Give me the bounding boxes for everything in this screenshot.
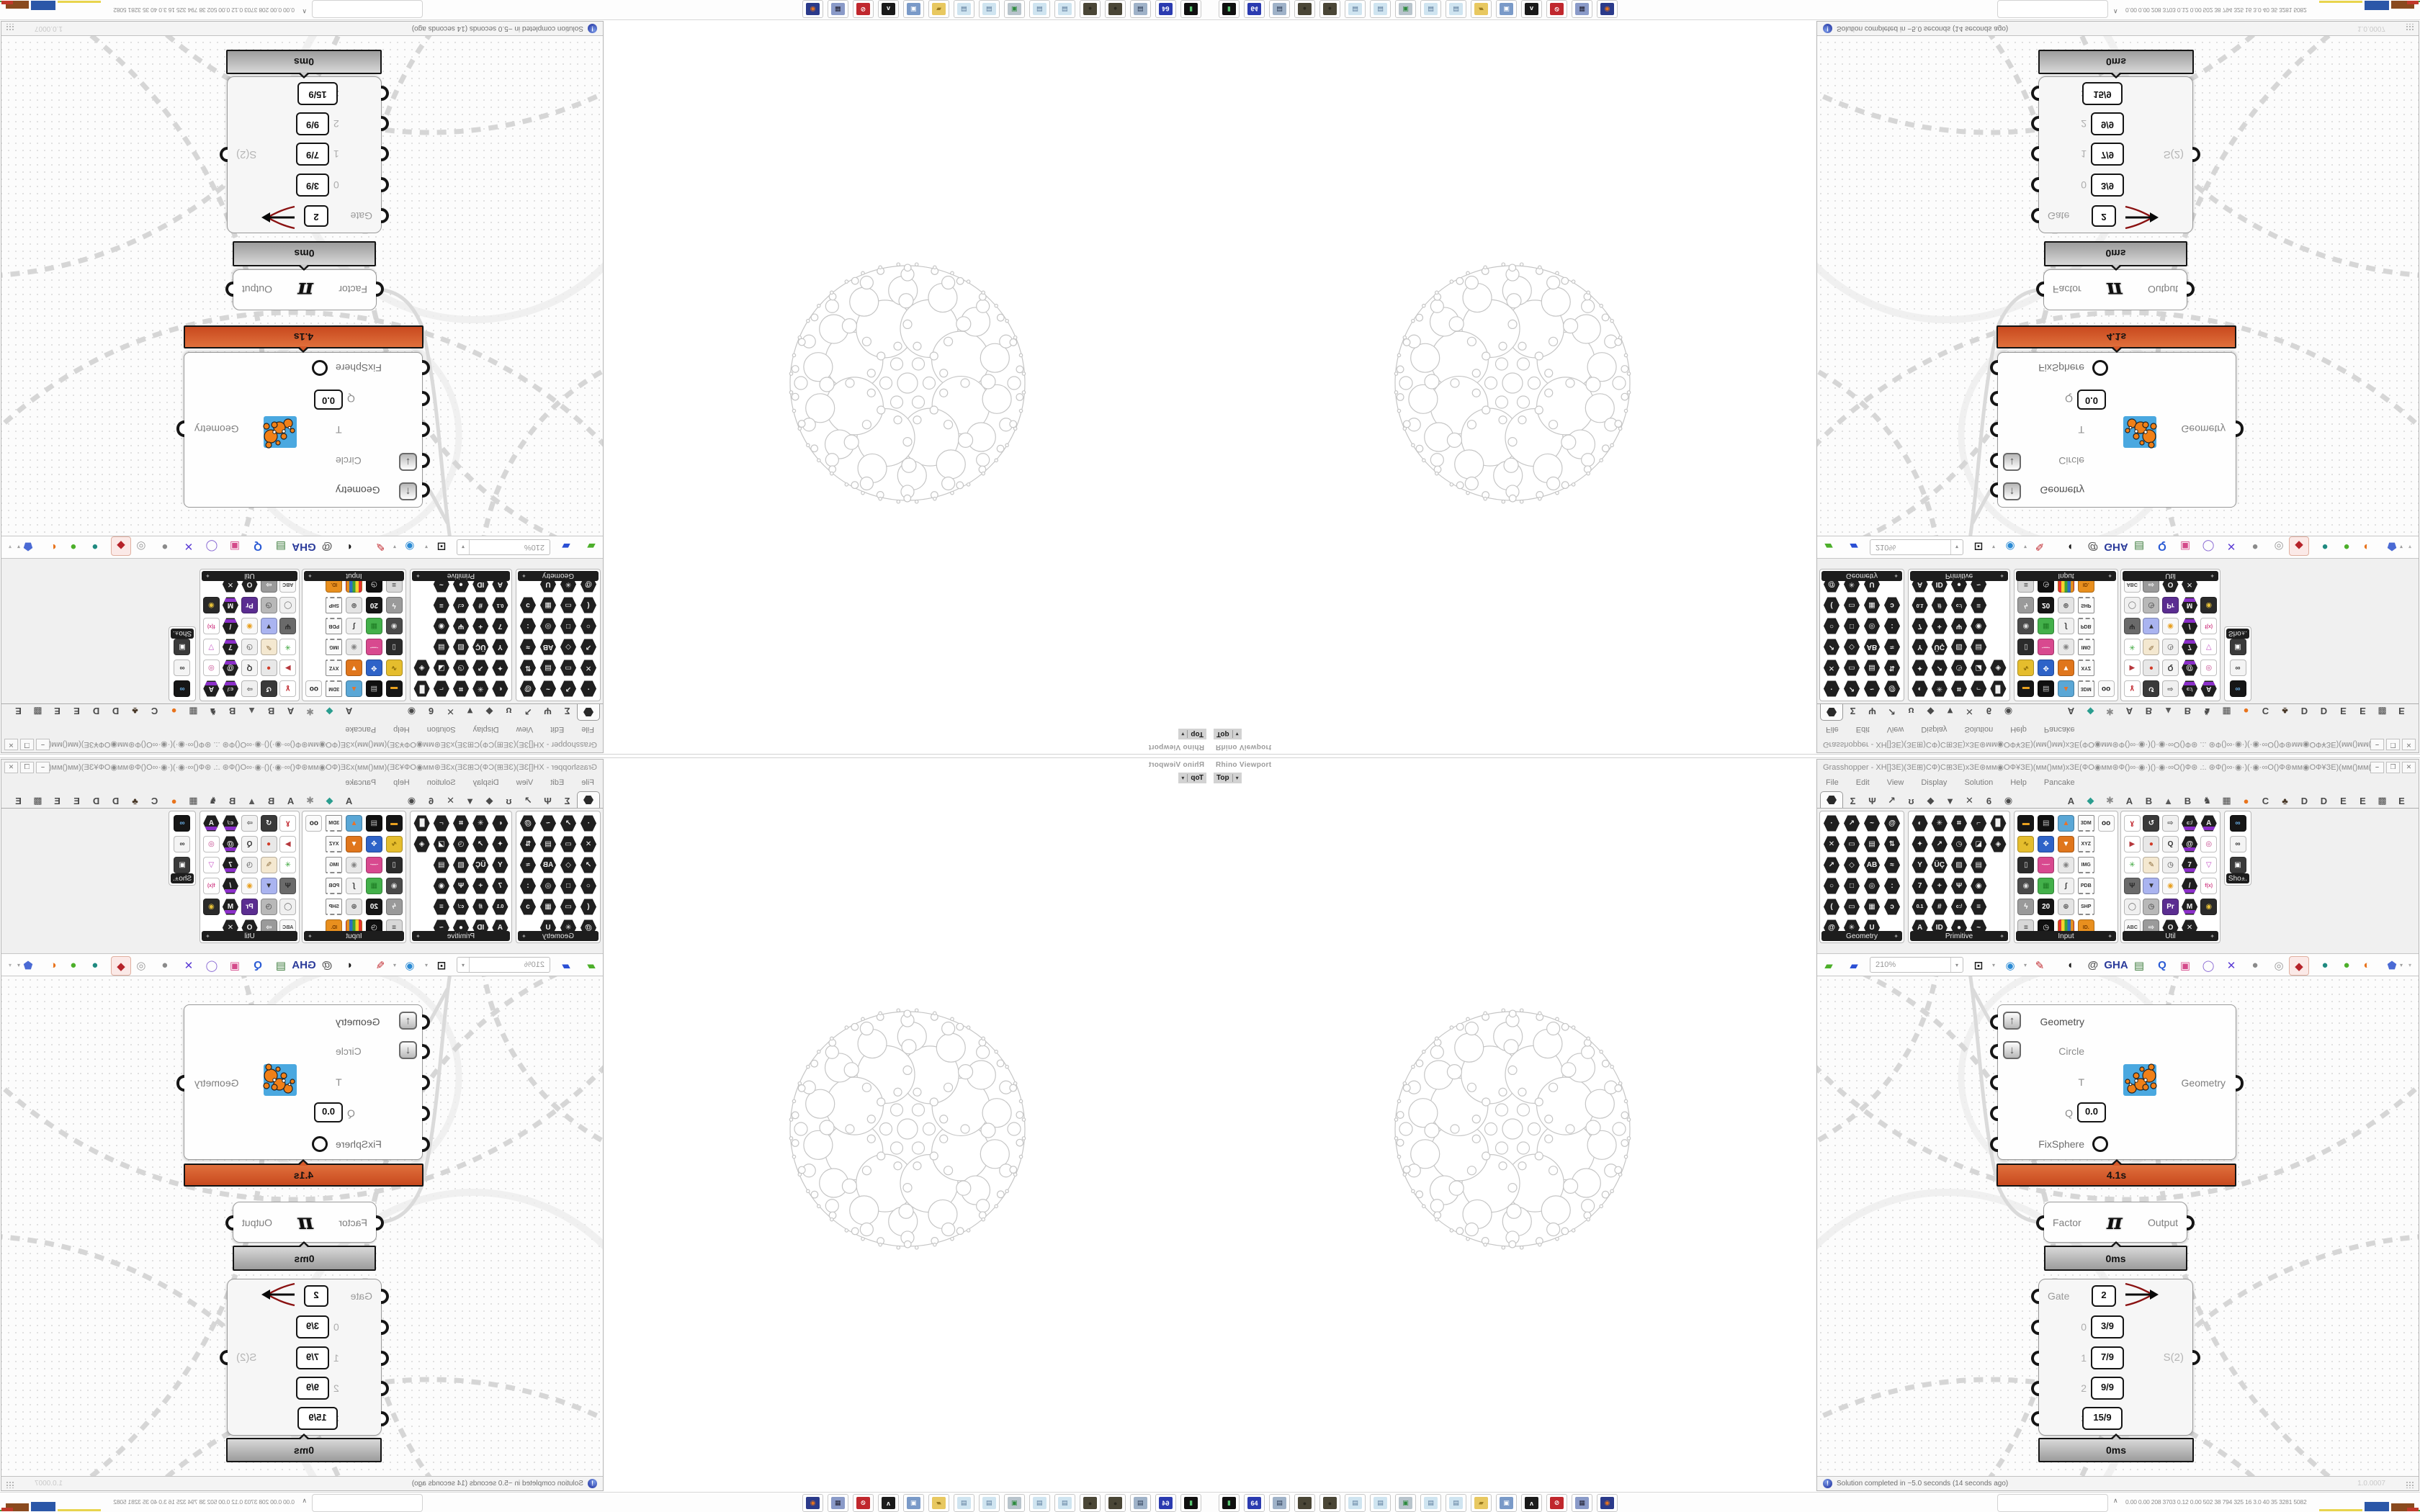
- spiral-purple-icon[interactable]: @: [2182, 836, 2198, 852]
- internalise-button[interactable]: @: [2084, 538, 2102, 556]
- monitor-icon[interactable]: ▣: [1395, 1494, 1416, 1512]
- tab-plugin-grid[interactable]: ▦: [184, 704, 203, 719]
- resize-grip[interactable]: [6, 24, 14, 31]
- palette-group-label[interactable]: Primitive✦: [412, 931, 510, 941]
- donut-icon[interactable]: ◎: [2200, 660, 2217, 676]
- array-icon[interactable]: ⌗: [453, 680, 470, 697]
- doc-icon[interactable]: ≡: [1971, 597, 1987, 613]
- palette-group-label[interactable]: Sho...✦: [2226, 629, 2249, 639]
- paint-icon[interactable]: ▼: [2058, 836, 2074, 852]
- seven-icon[interactable]: 7: [1912, 618, 1928, 634]
- ray-icon[interactable]: ↗: [1931, 660, 1948, 676]
- file-3dm-icon[interactable]: 3DM: [2078, 680, 2094, 697]
- goggles-info-icon[interactable]: ∞: [2230, 680, 2246, 697]
- cpath-icon[interactable]: c:/: [2182, 815, 2198, 832]
- balloon-button[interactable]: ◯: [202, 538, 221, 556]
- tab-plugin-a2[interactable]: A: [2120, 704, 2139, 719]
- c64-icon[interactable]: 64: [1244, 0, 1265, 18]
- caret-icon[interactable]: ▾: [15, 538, 22, 556]
- a-purple-icon[interactable]: A: [203, 680, 220, 697]
- flask-icon[interactable]: ▽: [203, 857, 220, 873]
- param-icon[interactable]: ◐: [1912, 815, 1928, 832]
- paint-icon[interactable]: ▼: [2058, 660, 2074, 676]
- array-icon[interactable]: ⌗: [453, 815, 470, 832]
- goggles-info-icon[interactable]: ∞: [2230, 815, 2246, 832]
- arc-icon[interactable]: (: [1824, 899, 1840, 915]
- circle-icon[interactable]: ○: [581, 878, 597, 894]
- tab-plugin-b2[interactable]: B: [2178, 793, 2197, 808]
- paint-icon[interactable]: ▼: [346, 836, 362, 852]
- cam-icon[interactable]: ◈: [1990, 660, 2007, 676]
- tab-plugin-flower[interactable]: ✱: [2100, 704, 2120, 719]
- scroll-icon[interactable]: ▾: [2406, 538, 2414, 556]
- ball2-icon[interactable]: ●: [1319, 1494, 1340, 1512]
- wire-display-button[interactable]: ◖: [341, 538, 359, 556]
- input-nub-0[interactable]: [2031, 1320, 2039, 1335]
- boolean-circle-icon[interactable]: [312, 360, 328, 376]
- tab-plugin-b1[interactable]: B: [261, 793, 281, 808]
- tab-display[interactable]: ◉: [402, 793, 421, 808]
- wave-icon[interactable]: ≈: [1884, 857, 1901, 873]
- arc-icon[interactable]: (: [581, 899, 597, 915]
- tab-plugin-flower[interactable]: ✱: [300, 704, 320, 719]
- tab-plugin-c[interactable]: C: [145, 793, 164, 808]
- tray-chevron-icon[interactable]: ∧: [302, 1497, 307, 1505]
- maximize-button[interactable]: ❒: [20, 762, 34, 773]
- fixsphere-component[interactable]: ↑ Geometry ↓ Circle T: [1997, 1004, 2236, 1160]
- tab-plugin-e2[interactable]: E: [2353, 704, 2372, 719]
- printer-icon[interactable]: ▤: [1130, 1494, 1151, 1512]
- tree-icon[interactable]: Ψ: [453, 618, 470, 634]
- viewport-tab-top[interactable]: Top ▾: [1214, 729, 1242, 739]
- cluster-button[interactable]: ▣: [225, 538, 244, 556]
- tab-intersect[interactable]: ✕: [1960, 793, 1979, 808]
- wrench-purple-icon[interactable]: /: [2182, 618, 2198, 634]
- knob-icon[interactable]: ◉: [386, 878, 403, 894]
- zigzag-icon[interactable]: ϟ: [2017, 899, 2034, 915]
- ray-icon[interactable]: ↗: [472, 660, 489, 676]
- wrench-purple-icon[interactable]: /: [222, 878, 238, 894]
- title-bar[interactable]: Grasshopper - XH[]ЗЕ)(ЗЕ⊞)СФ)С⊞ЗЕ)хЗЕ⊛мм…: [1, 760, 603, 774]
- vector-icon[interactable]: ↗: [1844, 815, 1860, 832]
- gauge-icon[interactable]: ◷: [261, 597, 277, 613]
- tab-plugin-e1[interactable]: E: [2334, 704, 2353, 719]
- tab-surface[interactable]: ◆: [1921, 793, 1940, 808]
- pipe-icon[interactable]: ◎: [1864, 618, 1881, 634]
- monitor-icon[interactable]: ▣: [1004, 1494, 1025, 1512]
- tab-plugin-d1[interactable]: D: [106, 704, 125, 719]
- fx-icon[interactable]: f(x): [2200, 878, 2217, 894]
- circle-icon[interactable]: ○: [581, 618, 597, 634]
- tab-intersect[interactable]: ✕: [1960, 704, 1979, 719]
- surface-icon[interactable]: ▤: [540, 660, 557, 676]
- file-shp-icon[interactable]: SHP: [326, 899, 342, 915]
- loop-icon[interactable]: ↺: [261, 815, 277, 832]
- tree-icon[interactable]: Ψ: [1950, 618, 1967, 634]
- donut-icon[interactable]: ◎: [2200, 836, 2217, 852]
- tab-plugin-d2[interactable]: D: [2314, 793, 2334, 808]
- notepad2-icon[interactable]: ▤: [1370, 1494, 1391, 1512]
- point-icon[interactable]: ·: [1824, 680, 1840, 697]
- rec-icon[interactable]: ●: [261, 660, 277, 676]
- tab-surface[interactable]: ◆: [480, 704, 499, 719]
- box-icon[interactable]: □: [1844, 878, 1860, 894]
- q-value-box[interactable]: 0.0: [2077, 1102, 2106, 1122]
- circle-icon[interactable]: ○: [1824, 618, 1840, 634]
- preview-shaded-button[interactable]: ◆: [2289, 536, 2309, 556]
- doc-icon[interactable]: ≡: [433, 899, 449, 915]
- arrow-white-icon[interactable]: ⇨: [2162, 680, 2179, 697]
- display-settings-icon[interactable]: ▣: [903, 1494, 924, 1512]
- mesh-icon[interactable]: ▦: [1864, 597, 1881, 613]
- scribble-icon[interactable]: ∿: [386, 836, 403, 852]
- tab-plugin-flower[interactable]: ✱: [2100, 793, 2120, 808]
- caret-icon[interactable]: ▾: [1990, 538, 1997, 556]
- knob-icon[interactable]: ◉: [2017, 878, 2034, 894]
- tab-plugin-dot[interactable]: ●: [2236, 704, 2256, 719]
- file-shp-icon[interactable]: SHP: [2078, 899, 2094, 915]
- menu-item-solution[interactable]: Solution: [1964, 725, 1993, 734]
- printer-icon[interactable]: ▤: [1130, 0, 1151, 18]
- wave-icon[interactable]: ≈: [520, 857, 537, 873]
- gate-value-0[interactable]: 3/9: [2091, 174, 2124, 197]
- dosbox-icon[interactable]: ▮: [1219, 1494, 1240, 1512]
- menu-item-view[interactable]: View: [1887, 725, 1904, 734]
- spiral-purple-icon[interactable]: @: [2182, 660, 2198, 676]
- wire-icon[interactable]: ·—·: [366, 857, 382, 873]
- gate-value-1[interactable]: 7/9: [296, 143, 329, 166]
- gate-value-3[interactable]: 15/9: [297, 82, 338, 105]
- folder-icon[interactable]: ▰: [928, 0, 949, 18]
- tab-plugin-bird[interactable]: ♣: [125, 793, 145, 808]
- burst-icon[interactable]: ✳: [1931, 680, 1948, 697]
- input-nub-factor[interactable]: [2036, 1215, 2044, 1230]
- tab-maths[interactable]: Σ: [1843, 793, 1863, 808]
- decimal-icon[interactable]: 0.1: [1912, 899, 1928, 915]
- caret-icon[interactable]: ▾: [2022, 538, 2029, 556]
- blob-icon[interactable]: ◉: [1971, 618, 1987, 634]
- vector-icon[interactable]: ↗: [560, 815, 577, 832]
- burst-icon[interactable]: ✳: [1931, 815, 1948, 832]
- tab-plugin-e1[interactable]: E: [2334, 793, 2353, 808]
- shirt-icon[interactable]: ▼: [261, 878, 277, 894]
- minimize-button[interactable]: –: [2370, 739, 2384, 750]
- twist-icon[interactable]: ⇅: [1884, 836, 1901, 852]
- arrow-white-icon[interactable]: ⇨: [241, 680, 258, 697]
- slider-icon[interactable]: ▬: [2017, 815, 2034, 832]
- notepad2-icon[interactable]: ▤: [1029, 1494, 1050, 1512]
- tab-plugin-square[interactable]: ▩: [2372, 793, 2392, 808]
- rgb-icon[interactable]: ✳: [2124, 639, 2141, 655]
- cross-icon[interactable]: ✕: [581, 836, 597, 852]
- tab-maths[interactable]: Σ: [1843, 704, 1863, 719]
- tab-plugin-bird[interactable]: ♣: [2275, 793, 2295, 808]
- calendar-icon[interactable]: 20: [2038, 899, 2054, 915]
- mesh-icon[interactable]: ▦: [540, 597, 557, 613]
- arc-icon[interactable]: (: [581, 597, 597, 613]
- gha-loader-button[interactable]: GHA: [295, 956, 313, 974]
- tab-display[interactable]: ◉: [1999, 793, 2018, 808]
- abc-icon[interactable]: AB: [1864, 639, 1881, 655]
- tab-params[interactable]: [577, 791, 600, 808]
- pencil-icon[interactable]: ✎: [2143, 857, 2159, 873]
- tab-transform[interactable]: 6: [421, 793, 441, 808]
- hook2-icon[interactable]: ⌐: [1971, 815, 1987, 832]
- caret-icon[interactable]: ▾: [391, 538, 398, 556]
- hook2-icon[interactable]: ⌐: [433, 815, 449, 832]
- balloon-button[interactable]: ◯: [2199, 538, 2218, 556]
- tab-plugin-rabbit[interactable]: ♞: [2197, 793, 2217, 808]
- cross-icon[interactable]: ✕: [1824, 836, 1840, 852]
- tab-vector[interactable]: ↗: [1882, 704, 1901, 719]
- preview-wire-button[interactable]: ◎: [132, 956, 151, 974]
- toggle-icon[interactable]: ▯: [386, 639, 403, 655]
- firefox-icon[interactable]: ◉: [802, 1494, 823, 1512]
- seven-purple-icon[interactable]: 7: [222, 639, 238, 655]
- c64-icon[interactable]: 64: [1155, 0, 1176, 18]
- loop-icon[interactable]: ↺: [2143, 815, 2159, 832]
- canvas-zoom-dropdown[interactable]: 210%▾: [1870, 539, 1963, 555]
- caret-icon[interactable]: ▾: [2398, 538, 2405, 556]
- save-file-button[interactable]: ▰: [1845, 956, 1863, 974]
- gate-component[interactable]: Gate 2 03/917/929/9315/9S(2): [2038, 1279, 2193, 1436]
- mem-icon[interactable]: ▉: [1990, 680, 2007, 697]
- hook-icon[interactable]: ɔ: [520, 597, 537, 613]
- menu-item-file[interactable]: File: [1826, 778, 1839, 787]
- diamond-icon[interactable]: ◇: [1844, 857, 1860, 873]
- toggle-icon[interactable]: ▯: [2017, 639, 2034, 655]
- display-settings-icon[interactable]: ▣: [903, 0, 924, 18]
- cat-icon[interactable]: ʌ: [878, 0, 899, 18]
- hook2-icon[interactable]: ⌐: [1971, 680, 1987, 697]
- diamond-icon[interactable]: ◇: [560, 857, 577, 873]
- find-button[interactable]: Q: [2153, 956, 2172, 974]
- tab-plugin-d2[interactable]: D: [86, 704, 106, 719]
- notepad2-icon[interactable]: ▤: [1370, 0, 1391, 18]
- tab-plugin-bird[interactable]: ♣: [2275, 704, 2295, 719]
- clock-icon[interactable]: ◷: [1950, 836, 1967, 852]
- colorwheel-icon[interactable]: ◉: [346, 857, 362, 873]
- uc-icon[interactable]: ÜÇ: [472, 639, 489, 655]
- tray-chevron-icon[interactable]: ∧: [2113, 1497, 2118, 1505]
- jigsaw-button[interactable]: ✕: [2222, 956, 2241, 974]
- tray-chevron-icon[interactable]: ∧: [2113, 7, 2118, 15]
- cat-icon[interactable]: ʌ: [1521, 1494, 1542, 1512]
- arc-icon[interactable]: (: [1824, 597, 1840, 613]
- input-nub-1[interactable]: [2031, 1351, 2039, 1366]
- input-nub-q[interactable]: [1990, 1106, 1998, 1121]
- tab-plugin-square[interactable]: ▩: [28, 793, 48, 808]
- preview-off-button[interactable]: ●: [156, 538, 174, 556]
- tab-transform[interactable]: 6: [1979, 704, 1999, 719]
- tab-plugin-b1[interactable]: B: [2139, 793, 2159, 808]
- q-value-box[interactable]: 0.0: [2077, 390, 2106, 410]
- branch-icon[interactable]: Y: [1912, 857, 1928, 873]
- tab-plugin-square[interactable]: ▩: [28, 704, 48, 719]
- tab-display[interactable]: ◉: [402, 704, 421, 719]
- plus-icon[interactable]: +: [472, 618, 489, 634]
- boolean-circle-icon[interactable]: [312, 1136, 328, 1152]
- caret-icon[interactable]: ▾: [423, 538, 430, 556]
- find-button[interactable]: Q: [248, 538, 267, 556]
- cluster-button[interactable]: ▣: [2176, 538, 2195, 556]
- palette-group-label[interactable]: Util✦: [2123, 931, 2218, 941]
- wire-display-button[interactable]: ◖: [341, 956, 359, 974]
- blob-green-button[interactable]: ●: [2337, 538, 2356, 556]
- tab-plugin-d1[interactable]: D: [106, 793, 125, 808]
- caret-icon[interactable]: ▾: [1990, 956, 1997, 974]
- canvas-zoom-dropdown[interactable]: 210%▾: [457, 539, 550, 555]
- tab-display[interactable]: ◉: [1999, 704, 2018, 719]
- gha-loader-button[interactable]: GHA: [2107, 956, 2125, 974]
- egg-icon[interactable]: ◉: [241, 618, 258, 634]
- boolean-circle-icon[interactable]: [2092, 1136, 2108, 1152]
- uc-icon[interactable]: ÜÇ: [1931, 639, 1948, 655]
- scroll-icon[interactable]: ▾: [2406, 956, 2414, 974]
- sphere-orange-button[interactable]: ◐: [44, 956, 63, 974]
- seven-purple-icon[interactable]: 7: [2182, 639, 2198, 655]
- printer-icon[interactable]: ▤: [1269, 1494, 1290, 1512]
- calculator-icon[interactable]: ▦: [1572, 1494, 1592, 1512]
- graph-icon[interactable]: ∫: [2058, 878, 2074, 894]
- scatter-icon[interactable]: :: [1884, 618, 1901, 634]
- colorwheel-icon[interactable]: ◉: [2058, 857, 2074, 873]
- checker-green-icon[interactable]: ▦: [366, 618, 382, 634]
- arrow-white-icon[interactable]: ⇨: [2162, 815, 2179, 832]
- resize-grip[interactable]: [6, 1481, 14, 1488]
- sphere-orange-button[interactable]: ◐: [2357, 538, 2376, 556]
- folder-icon[interactable]: ▰: [1471, 0, 1492, 18]
- open-file-button[interactable]: ▰: [582, 538, 601, 556]
- tab-curve[interactable]: ʊ: [499, 793, 519, 808]
- menu-item-display[interactable]: Display: [1921, 778, 1947, 787]
- cat-icon[interactable]: ʌ: [1521, 0, 1542, 18]
- wrench-purple-icon[interactable]: /: [2182, 878, 2198, 894]
- seven-icon[interactable]: 7: [1912, 878, 1928, 894]
- tab-intersect[interactable]: ✕: [441, 704, 460, 719]
- ball2-icon[interactable]: ●: [1080, 0, 1101, 18]
- caret-icon[interactable]: ▾: [2398, 956, 2405, 974]
- maximize-button[interactable]: ❒: [20, 739, 34, 750]
- arrow-white-icon[interactable]: ⇨: [241, 815, 258, 832]
- tab-plugin-d2[interactable]: D: [86, 793, 106, 808]
- tab-params[interactable]: [1820, 704, 1843, 721]
- cross-icon[interactable]: ✕: [1824, 660, 1840, 676]
- tab-plugin-b1[interactable]: B: [2139, 704, 2159, 719]
- clock-icon[interactable]: ◷: [453, 836, 470, 852]
- tab-plugin-grid[interactable]: ▦: [184, 793, 203, 808]
- preview-wire-button[interactable]: ◎: [2269, 956, 2288, 974]
- plus-icon[interactable]: +: [1931, 618, 1948, 634]
- atom-icon[interactable]: ⊕: [346, 899, 362, 915]
- gate-component[interactable]: Gate 2 03/917/929/9315/9S(2): [2038, 76, 2193, 233]
- tab-plugin-e2[interactable]: E: [48, 704, 67, 719]
- sphere-orange-button[interactable]: ◐: [2357, 956, 2376, 974]
- minimize-button[interactable]: –: [36, 762, 50, 773]
- preview-eye-button[interactable]: ◉: [2001, 956, 2020, 974]
- blob-green-button[interactable]: ●: [2337, 956, 2356, 974]
- rec-icon[interactable]: ●: [2143, 660, 2159, 676]
- tab-plugin-rabbit[interactable]: ♞: [203, 704, 223, 719]
- palette-group-label[interactable]: Input✦: [2016, 571, 2116, 581]
- knob-icon[interactable]: ◉: [386, 618, 403, 634]
- menu-item-pancake[interactable]: Pancake: [345, 778, 376, 787]
- preview-wire-button[interactable]: ◎: [2269, 538, 2288, 556]
- tab-plugin-b2[interactable]: B: [2178, 704, 2197, 719]
- web-icon[interactable]: ✦: [492, 836, 508, 852]
- file-img-icon[interactable]: IMG: [326, 857, 342, 873]
- fixsphere-component[interactable]: ↑ Geometry ↓ Circle T: [1997, 352, 2236, 508]
- mesh-icon[interactable]: ▦: [1864, 899, 1881, 915]
- notepad3-icon[interactable]: ▤: [979, 1494, 1000, 1512]
- branch-icon[interactable]: Y: [492, 639, 508, 655]
- tab-transform[interactable]: 6: [1979, 793, 1999, 808]
- web-icon[interactable]: ✦: [492, 660, 508, 676]
- vector-icon[interactable]: ↗: [560, 680, 577, 697]
- slider-icon[interactable]: ▬: [386, 680, 403, 697]
- hook-icon[interactable]: ɔ: [1884, 899, 1901, 915]
- tab-curve[interactable]: ʊ: [1901, 793, 1921, 808]
- minimize-button[interactable]: –: [36, 739, 50, 750]
- tab-plugin-e1[interactable]: E: [67, 704, 86, 719]
- menu-item-help[interactable]: Help: [2010, 778, 2027, 787]
- tab-plugin-e2[interactable]: E: [2353, 793, 2372, 808]
- branch-icon[interactable]: Y: [1912, 639, 1928, 655]
- tab-maths[interactable]: Σ: [557, 704, 577, 719]
- panel-icon[interactable]: ▤: [2038, 815, 2054, 832]
- pi-component[interactable]: Factor π Output: [233, 269, 377, 310]
- tree-gray-icon[interactable]: Ψ: [2124, 618, 2141, 634]
- menu-item-file[interactable]: File: [581, 725, 594, 734]
- gizmo-icon[interactable]: ✥: [2038, 836, 2054, 852]
- doc-icon[interactable]: ≡: [1971, 899, 1987, 915]
- preview-shaded-button[interactable]: ◆: [111, 536, 131, 556]
- tab-curve[interactable]: ʊ: [1901, 704, 1921, 719]
- doc-preview-button[interactable]: ▤: [2130, 956, 2148, 974]
- close-button[interactable]: ✕: [4, 762, 18, 773]
- timer-icon[interactable]: ◷: [2162, 857, 2179, 873]
- menu-item-view[interactable]: View: [516, 778, 534, 787]
- q-value-box[interactable]: 0.0: [314, 390, 343, 410]
- array-icon[interactable]: ⌗: [1950, 815, 1967, 832]
- preview-wire-button[interactable]: ◎: [132, 538, 151, 556]
- door-icon[interactable]: ◪: [433, 836, 449, 852]
- pencil-icon[interactable]: ✎: [261, 857, 277, 873]
- plane-icon[interactable]: ▭: [560, 836, 577, 852]
- file-3dm-icon[interactable]: 3DM: [326, 680, 342, 697]
- shirt-icon[interactable]: ▼: [261, 618, 277, 634]
- wire-icon[interactable]: ·—·: [366, 639, 382, 655]
- ball2-icon[interactable]: ●: [1080, 1494, 1101, 1512]
- tab-sets[interactable]: Ψ: [538, 793, 557, 808]
- palette-group-label[interactable]: Primitive✦: [1910, 931, 2008, 941]
- gate-value-2[interactable]: 9/9: [2091, 112, 2124, 135]
- tab-plugin-kite[interactable]: ◆: [320, 793, 339, 808]
- doc-icon[interactable]: ≡: [433, 597, 449, 613]
- balloon-button[interactable]: ◯: [2199, 956, 2218, 974]
- wire-icon[interactable]: ·—·: [2038, 639, 2054, 655]
- egg-icon[interactable]: ◉: [2162, 618, 2179, 634]
- tab-plugin-c[interactable]: C: [2256, 704, 2275, 719]
- palette-group-label[interactable]: Input✦: [304, 931, 404, 941]
- file-img-icon[interactable]: IMG: [2078, 857, 2094, 873]
- tab-plugin-b2[interactable]: B: [223, 793, 242, 808]
- mesh-icon[interactable]: ▦: [540, 899, 557, 915]
- tab-plugin-d1[interactable]: D: [2295, 793, 2314, 808]
- gauge-icon[interactable]: ◷: [2143, 899, 2159, 915]
- file-img-icon[interactable]: IMG: [2078, 639, 2094, 655]
- input-nub-2[interactable]: [2031, 1381, 2039, 1396]
